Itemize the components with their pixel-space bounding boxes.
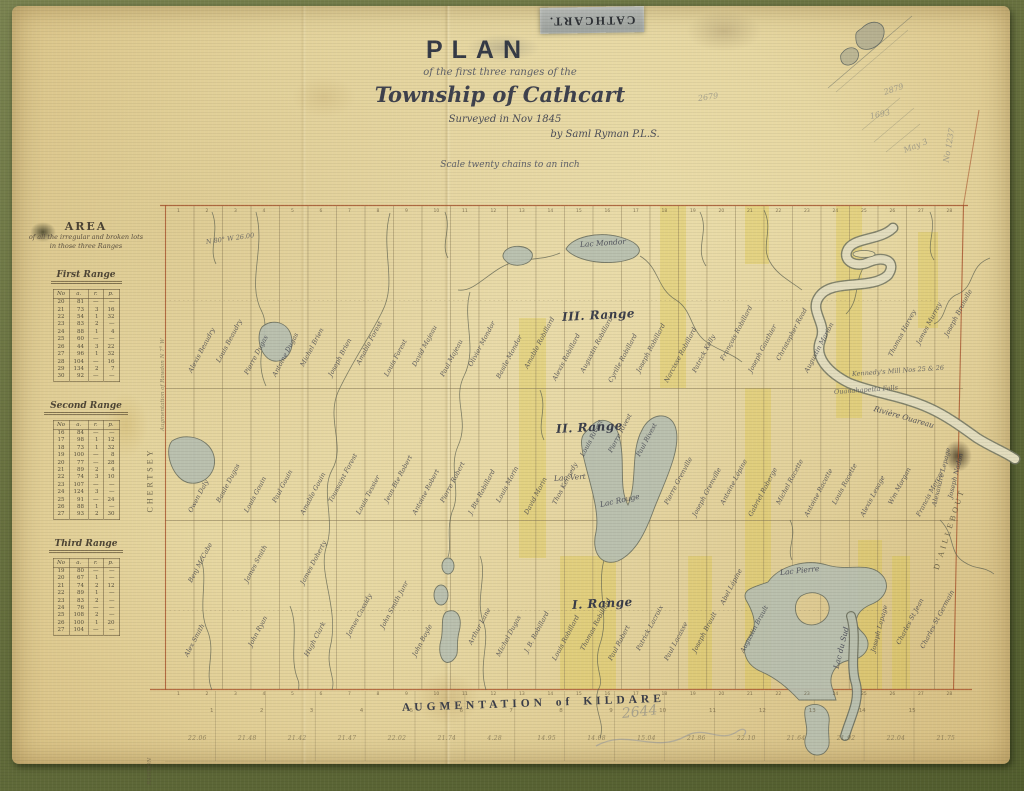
area-table-header: p. (103, 290, 119, 299)
area-table-row: 3092—— (53, 373, 119, 381)
area-table: Noa.r.p.2081——2173316225413223832—248814… (53, 289, 120, 382)
area-table-row: 2081—— (53, 299, 119, 307)
scale-note: Scale twenty chains to an inch (330, 160, 690, 170)
township-name: Township of Cathcart (330, 82, 670, 107)
area-table-row: 1980—— (53, 567, 119, 575)
title-block: PLAN of the first three ranges of the To… (330, 36, 710, 170)
area-table-row: 2913427 (53, 366, 119, 373)
area-table-header: r. (89, 558, 104, 567)
highlighted-lot (588, 556, 616, 689)
area-table-row: 23832— (53, 321, 119, 328)
area-table-row: 218924 (53, 467, 119, 474)
area-table-block: AREA of all the irregular and broken lot… (24, 220, 148, 636)
area-tables: First RangeNoa.r.p.2081——217331622541322… (24, 262, 148, 636)
area-range-section: First RangeNoa.r.p.2081——217331622541322… (24, 262, 148, 382)
area-table-row: 19100—8 (53, 452, 119, 459)
area-table-row: 2254132 (53, 314, 119, 321)
area-table-row: 2173316 (53, 307, 119, 314)
area-table-row: 248814 (53, 329, 119, 336)
highlighted-lot (688, 556, 712, 689)
area-table-row: 20671— (53, 575, 119, 582)
area-table-row: 241243— (53, 489, 119, 496)
area-table-header: No (53, 290, 69, 299)
area-table-row: 2560—— (53, 336, 119, 343)
area-table-row: 2591—24 (53, 497, 119, 504)
area-table-row: 26100120 (53, 620, 119, 627)
area-table-header: a. (69, 558, 89, 567)
title-subline: of the first three ranges of the (330, 66, 670, 79)
signature-scrawl (596, 729, 746, 746)
highlighted-lot (745, 206, 769, 264)
area-table-row: 2077—28 (53, 460, 119, 467)
range-table-title: First Range (51, 270, 122, 284)
highlighted-lot (519, 318, 546, 558)
area-range-section: Third RangeNoa.r.p.1980——20671—217421222… (24, 531, 148, 636)
area-table-header: a. (69, 290, 89, 299)
area-table-row: 2274310 (53, 474, 119, 481)
area-table-header: r. (89, 420, 104, 429)
area-table-row: 28104—16 (53, 359, 119, 366)
area-table-header: r. (89, 290, 104, 299)
flourish-sketch (856, 22, 884, 49)
area-table-row: 2793230 (53, 511, 119, 519)
range-table-title: Second Range (44, 401, 128, 415)
area-table-row: 2174212 (53, 583, 119, 590)
highlighted-lot (660, 206, 686, 388)
map-scan: CATHCART. PLAN of the first three ranges… (0, 0, 1024, 791)
tape-text: CATHCART. (548, 12, 636, 29)
area-table-row: 23832— (53, 598, 119, 605)
area-table-header: p. (103, 558, 119, 567)
area-table-row: 26881— (53, 504, 119, 511)
area-table-row: 1684—— (53, 429, 119, 437)
area-table-header: p. (103, 420, 119, 429)
river-island (853, 251, 875, 258)
map-title: PLAN (330, 36, 626, 65)
area-table: Noa.r.p.1980——20671—217421222891—23832—2… (53, 558, 120, 636)
area-table-row: 251082— (53, 612, 119, 619)
surveyor-name: by Saml Ryman P.L.S. (500, 129, 710, 140)
area-table-row: 2796132 (53, 351, 119, 358)
area-table-row: 1798112 (53, 437, 119, 444)
highlighted-lot (892, 556, 910, 689)
highlighted-lot (858, 540, 882, 690)
survey-date: Surveyed in Nov 1845 (330, 114, 680, 125)
area-table-row: 23107—— (53, 482, 119, 489)
area-table-header: No (53, 420, 69, 429)
archive-tape-label: CATHCART. (540, 6, 644, 34)
area-table-header: a. (69, 420, 89, 429)
area-table: Noa.r.p.1684——1798112187313219100—82077—… (53, 420, 120, 520)
range-table-title: Third Range (49, 539, 124, 553)
area-subtitle: in those three Ranges (24, 242, 148, 251)
area-table-row: 27104—— (53, 627, 119, 635)
area-title: AREA (24, 220, 148, 233)
area-table-row: 1873132 (53, 445, 119, 452)
area-table-row: 22891— (53, 590, 119, 597)
area-range-section: Second RangeNoa.r.p.1684——17981121873132… (24, 393, 148, 520)
area-table-row: 2476—— (53, 605, 119, 612)
area-table-header: No (53, 558, 69, 567)
area-table-row: 2644322 (53, 344, 119, 351)
area-subtitle: of all the irregular and broken lots (24, 233, 148, 242)
